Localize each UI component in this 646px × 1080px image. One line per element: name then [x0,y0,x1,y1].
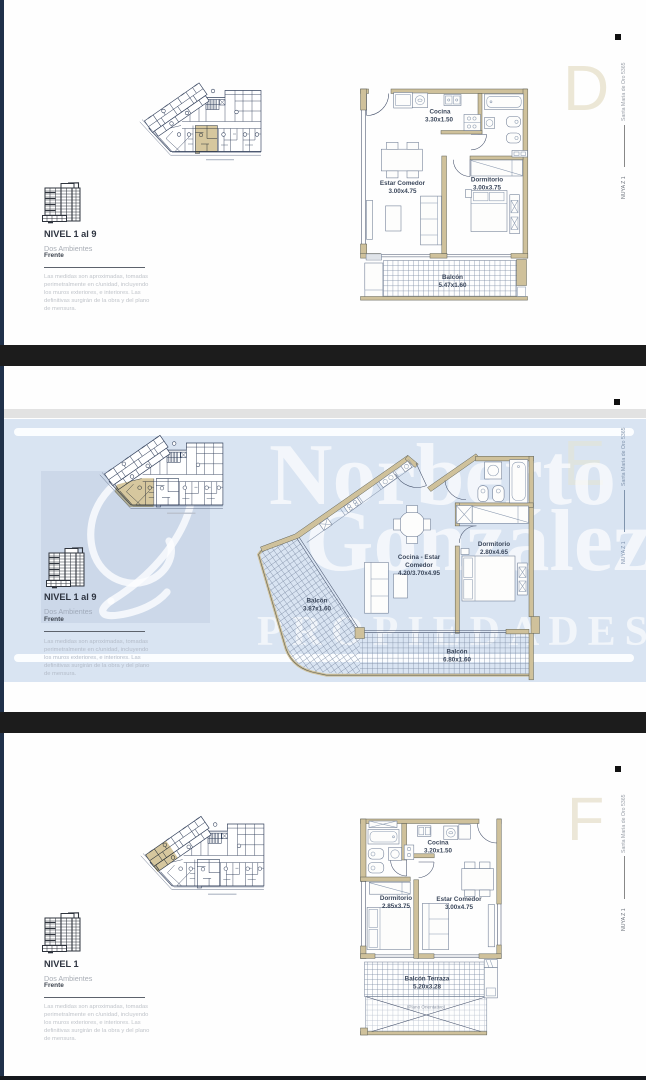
svg-text:Dormitorio: Dormitorio [380,895,412,902]
svg-text:Cocina: Cocina [430,109,451,116]
svg-text:3.87x1.60: 3.87x1.60 [303,606,332,613]
svg-text:Balcón Terraza: Balcón Terraza [405,976,450,983]
svg-text:Estar Comedor: Estar Comedor [436,896,482,903]
svg-text:2.85x3.75: 2.85x3.75 [382,903,411,910]
svg-text:2.80x4.65: 2.80x4.65 [480,549,509,556]
svg-text:(Plano Orientativo): (Plano Orientativo) [407,1005,446,1010]
svg-text:5.47x1.60: 5.47x1.60 [438,282,467,289]
svg-text:Cocina - Estar: Cocina - Estar [398,554,441,561]
svg-text:3.00x3.75: 3.00x3.75 [473,185,502,192]
svg-text:Balcón: Balcón [307,598,328,605]
svg-text:3.20x1.50: 3.20x1.50 [424,848,453,855]
svg-text:3.00x4.75: 3.00x4.75 [388,188,417,195]
svg-text:Estar Comedor: Estar Comedor [380,180,426,187]
svg-text:Cocina: Cocina [428,840,449,847]
svg-text:5.20x3.28: 5.20x3.28 [413,984,442,991]
svg-text:Dormitorio: Dormitorio [471,177,503,184]
svg-text:Balcón: Balcón [442,274,463,281]
svg-text:Dormitorio: Dormitorio [478,541,510,548]
svg-text:6.80x1.60: 6.80x1.60 [443,657,472,664]
svg-text:Comedor: Comedor [405,562,433,569]
svg-text:3.30x1.50: 3.30x1.50 [425,117,454,124]
svg-text:3.00x4.75: 3.00x4.75 [445,904,474,911]
svg-text:4.20/3.70x4.95: 4.20/3.70x4.95 [398,570,441,577]
svg-text:Balcón: Balcón [447,649,468,656]
